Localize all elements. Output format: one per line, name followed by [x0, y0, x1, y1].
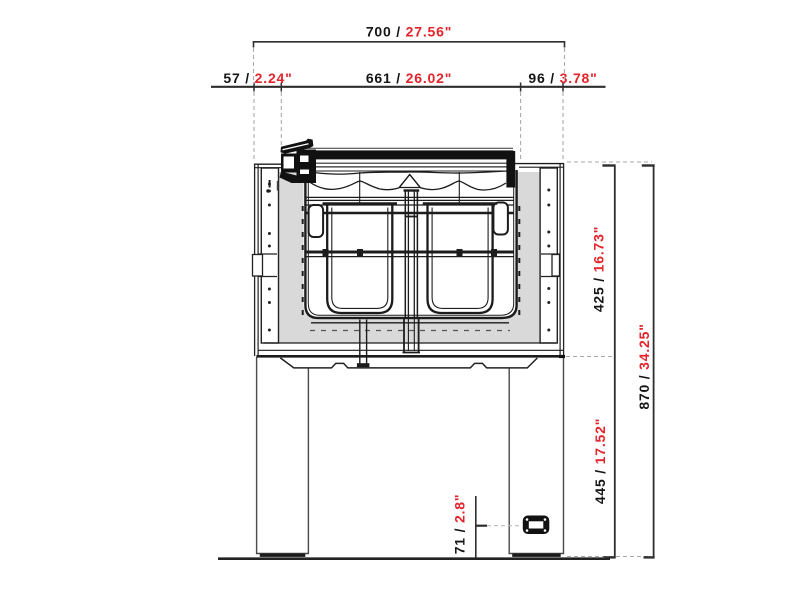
svg-text:700 / 27.56": 700 / 27.56" [366, 24, 452, 40]
svg-text:71 / 2.8": 71 / 2.8" [452, 494, 468, 555]
svg-text:425 / 16.73": 425 / 16.73" [591, 226, 607, 312]
svg-text:661 / 26.02": 661 / 26.02" [366, 70, 452, 86]
svg-text:57 / 2.24": 57 / 2.24" [223, 70, 292, 86]
svg-text:96 / 3.78": 96 / 3.78" [528, 70, 597, 86]
svg-text:870 / 34.25": 870 / 34.25" [636, 323, 652, 409]
svg-text:445 / 17.52": 445 / 17.52" [592, 418, 608, 504]
